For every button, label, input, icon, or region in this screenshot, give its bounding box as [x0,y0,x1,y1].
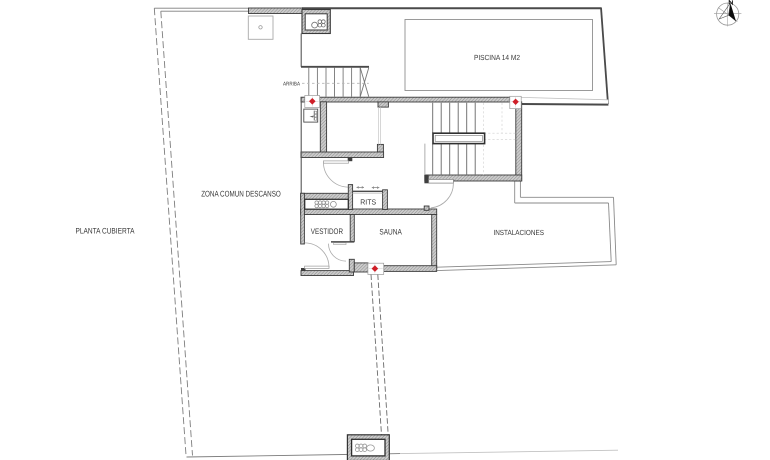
svg-text:PISCINA 14 M2: PISCINA 14 M2 [474,53,520,62]
svg-text:VESTIDOR: VESTIDOR [311,227,343,236]
svg-text:SAUNA: SAUNA [379,227,402,236]
svg-text:ARRIBA: ARRIBA [283,81,300,87]
svg-text:INSTALACIONES: INSTALACIONES [493,228,544,237]
svg-text:PLANTA CUBIERTA: PLANTA CUBIERTA [76,227,136,236]
svg-text:ZONA COMUN DESCANSO: ZONA COMUN DESCANSO [201,189,281,198]
svg-text:RITS: RITS [360,198,376,207]
